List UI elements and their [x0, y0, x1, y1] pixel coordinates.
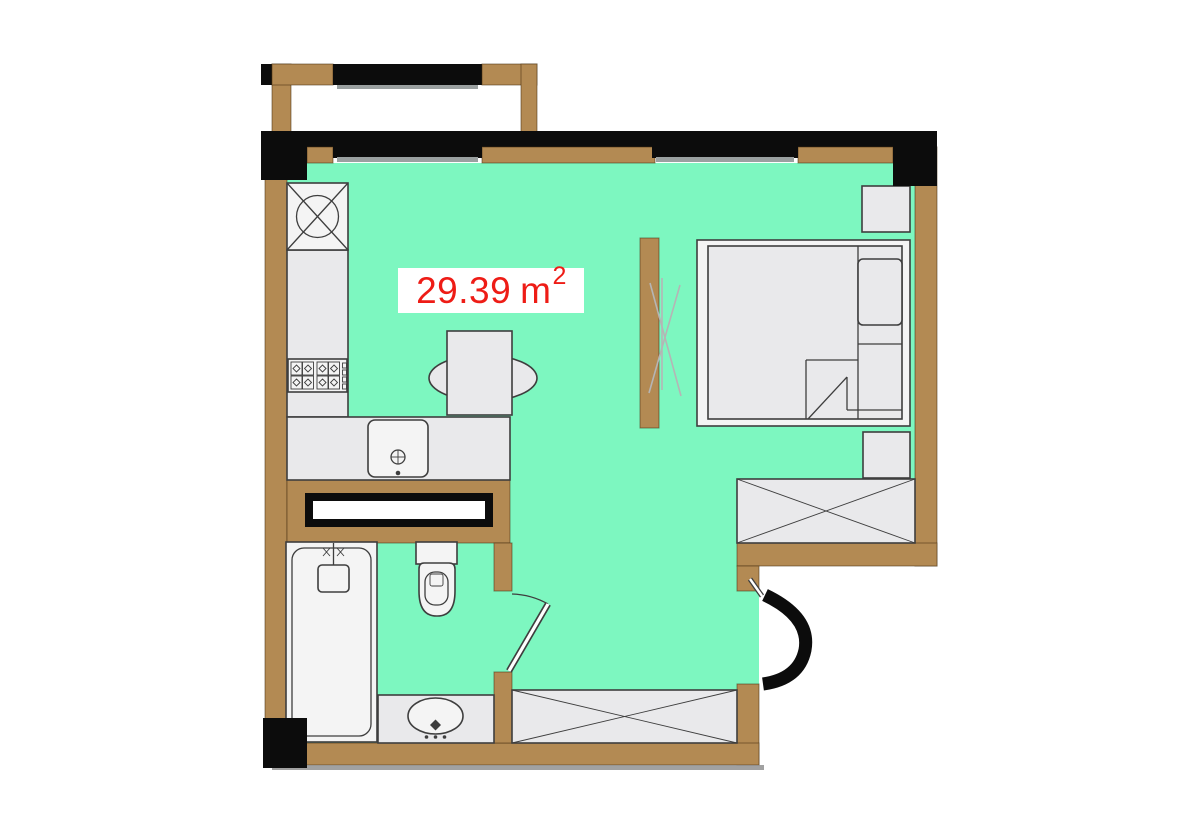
area-unit: m [520, 272, 551, 309]
corner-block-top-right [893, 131, 937, 186]
nightstand-bottom [863, 432, 910, 478]
pillow [858, 259, 902, 325]
shaft-window-glass [313, 501, 485, 519]
double-bed-symbol [697, 240, 910, 426]
refrigerator-symbol [287, 183, 348, 250]
bath-wall-upper [494, 543, 512, 591]
window-left [333, 135, 482, 158]
top-wall-segment [482, 147, 655, 163]
floor-plan-canvas [0, 0, 1200, 834]
vanity-symbol [378, 695, 494, 743]
area-label: 29.39 m2 [398, 268, 584, 313]
window-right [652, 135, 798, 158]
toilet-symbol [416, 542, 457, 616]
corner-block-bottom-left [263, 718, 307, 768]
gas-stove-symbol [288, 359, 347, 392]
entry-door-swing-arc [763, 595, 806, 684]
bottom-wall-shadow [272, 765, 764, 770]
balcony-corner-block [261, 64, 272, 85]
balcony-glazing-window [333, 64, 482, 85]
top-wall-segment [798, 147, 893, 163]
dining-table-symbol [447, 331, 512, 415]
balcony-rail-top-left [272, 64, 333, 85]
bathtub-symbol [286, 542, 377, 742]
shower-mixer [318, 565, 349, 592]
window-right-sill [656, 157, 794, 162]
left-wall [265, 163, 287, 765]
window-left-sill [337, 157, 478, 162]
corner-block-top-left [261, 131, 307, 180]
right-wall [915, 147, 937, 566]
balcony-sill [337, 85, 478, 89]
kitchen-sink-symbol [368, 420, 428, 477]
area-superscript: 2 [553, 264, 567, 289]
top-wall-segment [307, 147, 333, 163]
jog-wall [737, 543, 937, 566]
floor-plan: 29.39 m2 [0, 0, 1200, 834]
bath-wall-lower [494, 672, 512, 743]
wardrobe-right-symbol [737, 479, 915, 543]
sliding-partition [640, 238, 659, 428]
wardrobe-bottom-symbol [512, 690, 737, 743]
nightstand-top [862, 186, 910, 232]
area-value: 29.39 [416, 272, 511, 309]
bottom-wall [287, 743, 759, 765]
